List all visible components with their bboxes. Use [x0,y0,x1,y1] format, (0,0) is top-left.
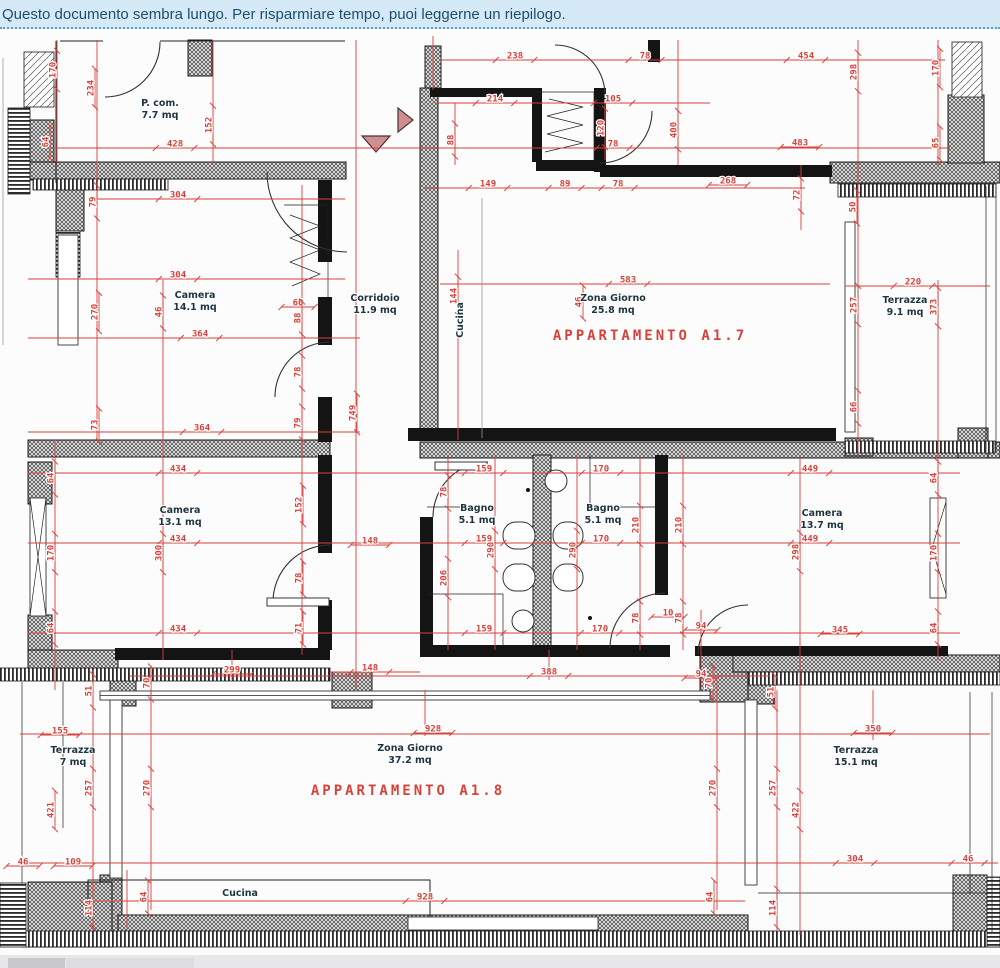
svg-text:422: 422 [792,802,802,818]
svg-text:388: 388 [541,668,557,678]
svg-text:P. com.: P. com. [141,98,179,109]
svg-text:64: 64 [706,891,716,902]
svg-text:300: 300 [155,545,165,561]
floor-plan: 1702341524286430479238782141058812078149… [0,0,1000,968]
svg-text:421: 421 [47,802,57,818]
apartment-title: APPARTAMENTO A1.7 [553,328,747,344]
page-footer-strip [0,955,1000,968]
room-label: Cucina [222,888,258,899]
room-label: Corridoio11.9 mq [350,293,400,316]
bidet-icon [503,564,535,591]
svg-text:170: 170 [930,545,940,561]
svg-text:114: 114 [85,899,95,916]
svg-text:400: 400 [670,122,680,138]
room-label: Bagno5.1 mq [585,503,622,526]
room-label: Camera13.7 mq [800,508,843,531]
svg-text:298: 298 [850,64,860,80]
svg-text:Zona Giorno: Zona Giorno [377,743,443,754]
svg-text:148: 148 [362,537,378,547]
svg-text:170: 170 [932,60,942,76]
svg-text:270: 270 [709,780,719,796]
svg-text:483: 483 [792,139,808,149]
svg-text:159: 159 [476,465,492,475]
svg-text:51: 51 [767,687,777,698]
room-label: Camera13.1 mq [158,505,201,528]
svg-text:257: 257 [85,780,95,796]
svg-text:13.7 mq: 13.7 mq [800,520,843,531]
svg-text:234: 234 [87,79,97,96]
svg-text:Terrazza: Terrazza [883,295,928,306]
svg-text:14.1 mq: 14.1 mq [173,302,216,313]
bidet-icon [553,564,583,591]
svg-text:364: 364 [194,424,211,434]
svg-text:13.1 mq: 13.1 mq [158,517,201,528]
svg-text:210: 210 [632,517,642,533]
svg-text:364: 364 [192,330,209,340]
svg-text:120: 120 [597,120,607,136]
svg-text:214: 214 [487,95,504,105]
svg-text:15.1 mq: 15.1 mq [834,757,877,768]
svg-text:Terrazza: Terrazza [51,745,96,756]
document-summary-banner[interactable]: Questo documento sembra lungo. Per rispa… [0,0,1000,29]
room-label: Cucina [455,302,466,338]
svg-text:79: 79 [89,197,99,208]
svg-text:304: 304 [170,191,187,201]
svg-text:298: 298 [792,544,802,560]
room-label: P. com.7.7 mq [141,98,179,121]
svg-text:78: 78 [640,52,651,62]
svg-text:155: 155 [52,727,68,737]
svg-text:5.1 mq: 5.1 mq [585,515,622,526]
svg-text:170: 170 [593,465,609,475]
svg-text:88: 88 [447,135,457,146]
svg-text:64: 64 [47,622,57,633]
sink-icon [512,610,534,632]
svg-text:Camera: Camera [802,508,843,519]
svg-text:88: 88 [294,313,304,324]
svg-text:304: 304 [170,271,187,281]
svg-text:73: 73 [91,420,101,431]
svg-text:345: 345 [832,626,848,636]
svg-text:304: 304 [847,855,864,865]
svg-text:9.1 mq: 9.1 mq [887,307,924,318]
svg-text:Bagno: Bagno [460,503,494,514]
svg-text:290: 290 [569,542,579,558]
svg-text:64: 64 [930,622,940,633]
svg-text:210: 210 [675,517,685,533]
svg-text:350: 350 [865,725,881,735]
room-label: Terrazza15.1 mq [834,745,879,768]
svg-text:Zona Giorno: Zona Giorno [580,293,646,304]
svg-text:434: 434 [170,465,187,475]
svg-text:78: 78 [632,613,642,624]
svg-text:79: 79 [294,418,304,429]
banner-text: Questo documento sembra lungo. Per rispa… [2,6,566,23]
svg-text:449: 449 [802,535,818,545]
stairs [8,108,30,194]
svg-text:Camera: Camera [160,505,201,516]
svg-text:Cucina: Cucina [222,888,258,899]
svg-text:220: 220 [905,278,921,288]
svg-text:71: 71 [295,623,305,634]
svg-text:Terrazza: Terrazza [834,745,879,756]
svg-text:50: 50 [849,202,859,213]
svg-text:72: 72 [793,190,803,201]
svg-text:64: 64 [930,472,940,483]
svg-text:268: 268 [720,177,736,187]
svg-text:46: 46 [963,855,974,865]
svg-text:148: 148 [362,664,378,674]
svg-text:434: 434 [170,625,187,635]
svg-text:70: 70 [143,678,153,689]
svg-text:928: 928 [425,725,441,735]
svg-text:373: 373 [930,299,940,315]
svg-text:170: 170 [592,625,608,635]
svg-text:64: 64 [42,136,52,147]
svg-text:257: 257 [769,780,779,796]
svg-text:434: 434 [170,535,187,545]
svg-text:583: 583 [620,276,636,286]
room-label: Camera14.1 mq [173,290,216,313]
toilet-icon [503,522,535,549]
svg-text:449: 449 [802,465,818,475]
svg-text:152: 152 [295,497,305,513]
svg-text:78: 78 [608,140,619,150]
room-label: Bagno5.1 mq [459,503,496,526]
svg-text:7.7 mq: 7.7 mq [142,110,179,121]
svg-text:206: 206 [440,570,450,586]
svg-text:7 mq: 7 mq [60,757,87,768]
svg-text:25.8 mq: 25.8 mq [591,305,634,316]
svg-text:64: 64 [47,472,57,483]
svg-text:149: 149 [480,180,496,190]
svg-text:10: 10 [663,609,674,619]
svg-text:170: 170 [593,535,609,545]
svg-text:144: 144 [450,287,460,304]
svg-text:749: 749 [349,405,359,421]
svg-text:454: 454 [798,52,815,62]
svg-text:299: 299 [224,666,240,676]
svg-text:89: 89 [560,180,571,190]
svg-text:46: 46 [18,858,29,868]
svg-text:270: 270 [143,780,153,796]
svg-text:66: 66 [850,402,860,413]
svg-text:78: 78 [613,180,624,190]
svg-text:428: 428 [167,140,183,150]
svg-text:Cucina: Cucina [455,302,466,338]
svg-text:109: 109 [65,858,81,868]
svg-text:65: 65 [932,138,942,149]
svg-text:152: 152 [205,117,215,133]
svg-text:Corridoio: Corridoio [350,293,400,304]
apartment-title: APPARTAMENTO A1.8 [311,783,505,799]
svg-text:46: 46 [155,307,165,318]
svg-text:290: 290 [487,542,497,558]
svg-text:270: 270 [91,304,101,320]
svg-text:78: 78 [440,487,450,498]
svg-text:78: 78 [294,367,304,378]
svg-text:78: 78 [295,573,305,584]
svg-text:105: 105 [605,95,621,105]
svg-text:78: 78 [675,613,685,624]
svg-text:64: 64 [140,891,150,902]
svg-text:11.9 mq: 11.9 mq [353,305,396,316]
svg-text:238: 238 [507,52,523,62]
svg-text:114: 114 [769,899,779,916]
svg-text:257: 257 [850,297,860,313]
svg-text:37.2 mq: 37.2 mq [388,755,431,766]
svg-text:70: 70 [705,678,715,689]
svg-text:928: 928 [417,893,433,903]
svg-text:159: 159 [476,625,492,635]
svg-text:94: 94 [696,622,707,632]
svg-text:51: 51 [85,686,95,697]
svg-text:Bagno: Bagno [586,503,620,514]
svg-text:Camera: Camera [175,290,216,301]
svg-text:170: 170 [47,545,57,561]
svg-text:170: 170 [49,62,59,78]
room-label: Terrazza9.1 mq [883,295,928,318]
svg-text:5.1 mq: 5.1 mq [459,515,496,526]
